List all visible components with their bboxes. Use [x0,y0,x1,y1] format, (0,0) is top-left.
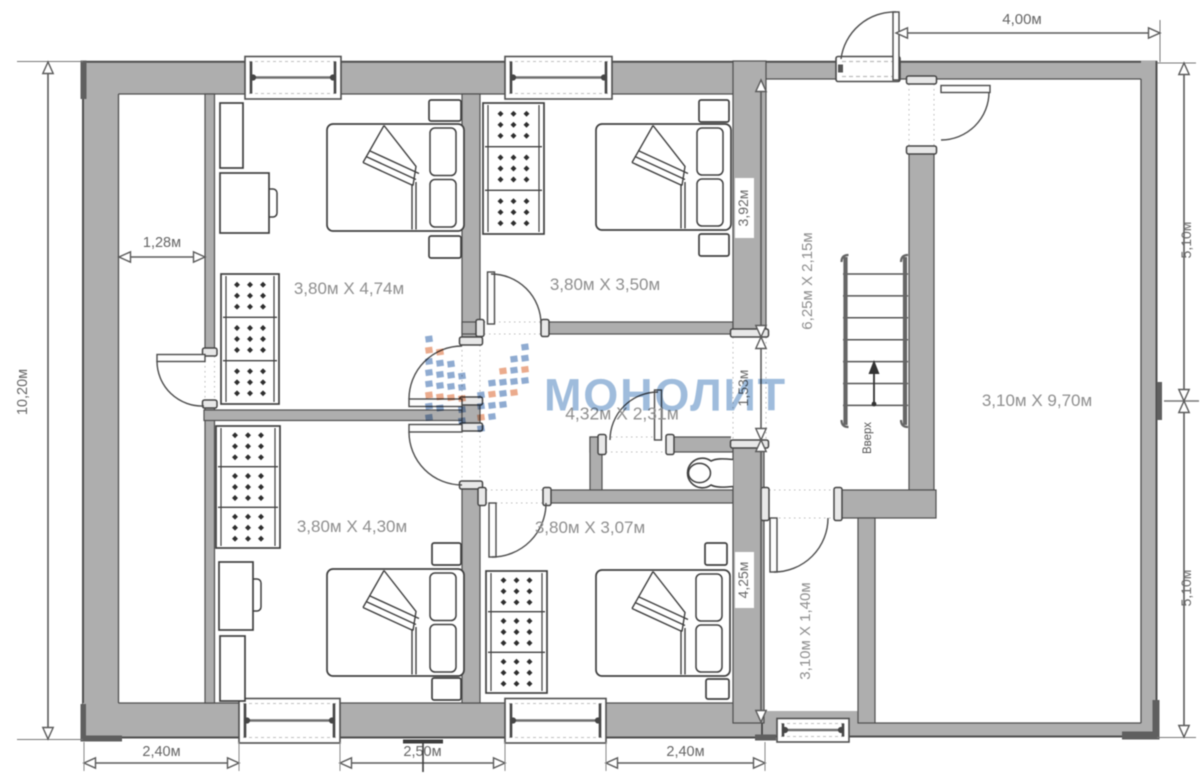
svg-text:3,10м X 1,40м: 3,10м X 1,40м [797,582,814,679]
svg-text:4,00м: 4,00м [1002,11,1042,28]
svg-text:Вверх: Вверх [862,422,874,454]
svg-text:3,80м X 3,07м: 3,80м X 3,07м [535,518,645,537]
svg-text:3,92м: 3,92м [735,190,751,227]
svg-text:3,80м X 4,74м: 3,80м X 4,74м [294,279,404,298]
svg-text:2,40м: 2,40м [666,744,704,760]
svg-text:5,10м: 5,10м [1178,222,1194,259]
svg-text:3,80м X 4,30м: 3,80м X 4,30м [297,517,407,536]
svg-text:МОНОЛИТ: МОНОЛИТ [544,370,787,421]
svg-text:2,40м: 2,40м [142,744,180,760]
svg-text:6,25м X 2,15м: 6,25м X 2,15м [799,232,816,329]
svg-text:3,80м X 3,50м: 3,80м X 3,50м [550,275,660,294]
svg-text:4,25м: 4,25м [735,562,751,599]
svg-text:10,20м: 10,20м [15,369,31,415]
svg-text:3,10м X 9,70м: 3,10м X 9,70м [982,391,1092,410]
svg-text:5,10м: 5,10м [1178,570,1194,607]
svg-text:1,28м: 1,28м [143,235,181,251]
